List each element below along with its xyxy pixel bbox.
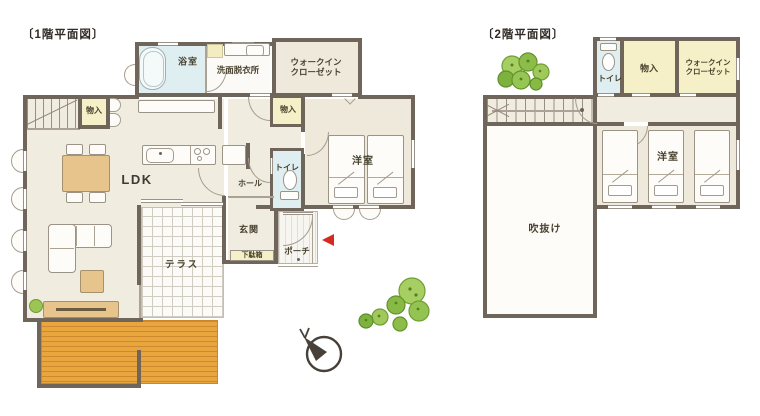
wall-segment: [78, 95, 82, 127]
wall-segment: [78, 125, 110, 129]
entrance-arrow-icon: [322, 234, 334, 246]
window: [608, 205, 632, 209]
wall-segment: [301, 205, 415, 209]
stove-burner: [197, 156, 202, 161]
label-hall: ホール: [238, 179, 262, 189]
label-wic-2f-line2: クローゼット: [686, 67, 731, 76]
tv-board-line: [56, 308, 106, 311]
label-bathroom: 浴室: [178, 57, 198, 68]
dining-table: [62, 155, 110, 192]
pillow: [608, 185, 632, 196]
label-void: 吹抜け: [529, 224, 562, 236]
pillow: [334, 187, 358, 198]
label-terrace: テラス: [165, 259, 199, 270]
sofa-cushion-line: [94, 226, 95, 246]
wall-segment: [137, 205, 141, 285]
label-porch: ポーチ: [284, 246, 310, 256]
wall-segment: [620, 41, 624, 93]
label-wic-2f: ウォークイン クローゼット: [686, 58, 731, 76]
sofa-cushion-line: [76, 226, 77, 246]
stove-burner: [203, 148, 210, 155]
toilet-bowl: [283, 170, 297, 190]
garden-trees-icon: [492, 50, 554, 94]
terrace-edge: [139, 285, 141, 318]
window: [23, 151, 27, 171]
deck-wall: [137, 350, 141, 388]
wall-segment: [272, 38, 276, 97]
toilet-tank: [600, 43, 617, 51]
kitchen-sink: [146, 148, 174, 163]
label-entrance: 玄関: [239, 225, 259, 236]
wall-segment: [272, 38, 362, 42]
wall-segment: [593, 122, 597, 318]
chair: [66, 144, 83, 155]
label-wic-2f-line1: ウォークイン: [686, 58, 731, 67]
sofa-cushion-line: [50, 248, 74, 249]
wall-segment: [593, 93, 740, 97]
corridor-2f: [597, 97, 736, 122]
pillow: [654, 185, 678, 196]
door-opening: [680, 93, 696, 97]
label-storage-b: 物入: [280, 105, 296, 115]
wall-segment: [648, 122, 740, 126]
door-opening: [598, 93, 614, 97]
stairs-direction-line: [492, 110, 580, 112]
bathtub-inner: [143, 51, 164, 87]
refrigerator: [222, 145, 246, 165]
chair: [89, 144, 106, 155]
window: [411, 140, 415, 168]
stove-burner: [194, 148, 201, 155]
label-toilet-2f: トイレ: [598, 74, 622, 84]
casement-window-icon: [11, 187, 23, 211]
casement-window-icon: [11, 270, 23, 294]
deck-wall: [37, 384, 141, 388]
window: [652, 205, 676, 209]
wall-segment: [483, 122, 624, 126]
toilet-bowl: [602, 53, 615, 71]
entrance-door: [283, 212, 313, 215]
stairs-edge: [27, 128, 80, 130]
wood-deck: [41, 320, 218, 384]
window: [23, 272, 27, 290]
sliding-door: [181, 202, 223, 206]
casement-window-icon: [333, 209, 355, 220]
pillow: [373, 187, 397, 198]
chair: [89, 192, 106, 203]
window: [23, 189, 27, 209]
wall-segment: [222, 196, 226, 264]
sliding-door: [141, 199, 183, 203]
porch-step-line: [278, 266, 318, 267]
window: [600, 37, 616, 41]
wall-segment: [483, 95, 487, 318]
casement-window-icon: [11, 229, 23, 253]
wall-segment: [274, 211, 278, 264]
void-area: [487, 126, 593, 314]
wall-segment: [358, 38, 362, 99]
window: [158, 42, 178, 46]
label-bedroom-1f: 洋室: [352, 156, 374, 168]
porch-dot: [297, 258, 300, 261]
label-wic-1f-line2: クローゼット: [290, 67, 341, 77]
label-ldk: LDK: [121, 172, 152, 188]
window: [696, 205, 720, 209]
entrance-step-line: [228, 196, 274, 198]
wall-segment: [23, 318, 143, 322]
pillow: [700, 185, 724, 196]
door-opening: [270, 158, 273, 174]
door-opening: [632, 93, 650, 97]
garden-trees-icon: [352, 276, 434, 338]
label-bedroom-2f: 洋室: [657, 152, 679, 164]
kitchen-cupboard: [138, 100, 215, 113]
side-table: [80, 270, 104, 293]
label-wic-1f-line1: ウォークイン: [290, 57, 341, 67]
toilet-tank: [280, 191, 299, 200]
plant-icon: [29, 299, 43, 313]
window: [736, 140, 740, 170]
chair: [66, 192, 83, 203]
label-shoe-cabinet: 下駄箱: [242, 252, 263, 260]
window: [23, 231, 27, 251]
label-washroom: 洗面脱衣所: [217, 65, 260, 75]
vanity-sink: [246, 45, 264, 56]
casement-window-icon: [11, 149, 23, 173]
floor-plan-canvas: 〔1階平面図〕: [0, 0, 760, 416]
casement-window-icon: [124, 64, 135, 86]
label-storage-a: 物入: [86, 106, 102, 116]
floor2-title: 〔2階平面図〕: [482, 26, 564, 42]
label-toilet-1f: トイレ: [275, 163, 299, 173]
floor1-title: 〔1階平面図〕: [22, 26, 104, 42]
faucet-dot: [159, 152, 162, 155]
wall-segment: [675, 41, 679, 93]
casement-window-icon: [359, 209, 381, 220]
washing-machine: [207, 44, 223, 58]
wall-segment: [362, 95, 415, 99]
wall-segment: [483, 314, 597, 318]
counter-divider: [190, 146, 191, 164]
window: [736, 58, 740, 80]
compass-north-icon: [294, 324, 350, 380]
deck-wall: [37, 318, 41, 388]
wall-segment: [218, 93, 222, 129]
label-wic-1f: ウォークイン クローゼット: [290, 57, 341, 77]
label-storage-2f: 物入: [640, 64, 658, 75]
